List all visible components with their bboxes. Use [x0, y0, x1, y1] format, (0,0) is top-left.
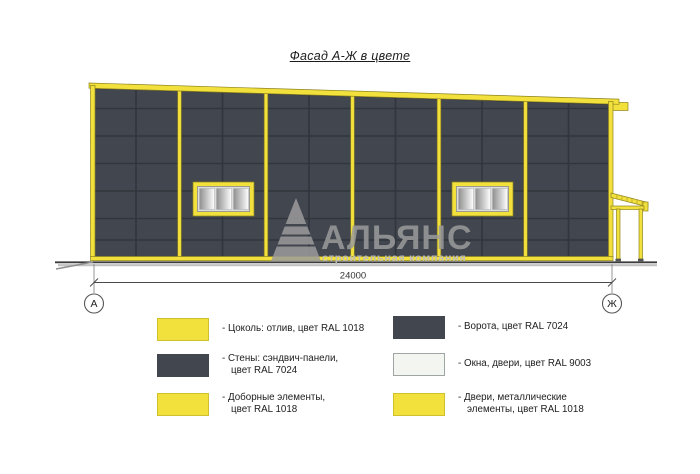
- legend-swatch: [393, 393, 445, 416]
- axis-marker-zh: Ж: [603, 294, 622, 313]
- drawing-sheet: Фасад А-Ж в цвете: [0, 0, 700, 474]
- legend-swatch: [157, 354, 209, 377]
- axis-label-zh: Ж: [607, 298, 617, 310]
- corner-trim-right: [609, 102, 614, 258]
- legend-label: - Цоколь: отлив, цвет RAL 1018: [222, 323, 364, 335]
- legend-swatch: [393, 316, 445, 339]
- legend-item: - Ворота, цвет RAL 7024: [393, 316, 568, 339]
- facade-drawing: АЛЬЯНС строительная компания 24000 А Ж: [0, 0, 700, 474]
- canopy-post-left: [617, 209, 621, 259]
- canopy-post-right: [639, 209, 643, 259]
- dimension-value: 24000: [340, 271, 366, 282]
- post-base-left: [616, 259, 622, 262]
- post-base-right: [638, 259, 644, 262]
- window-right: [452, 182, 513, 216]
- legend-item: - Цоколь: отлив, цвет RAL 1018: [157, 318, 364, 341]
- watermark-name: АЛЬЯНС: [321, 219, 473, 257]
- legend-swatch: [157, 393, 209, 416]
- legend-swatch: [157, 318, 209, 341]
- legend-label: - Окна, двери, цвет RAL 9003: [458, 358, 591, 370]
- axis-marker-a: А: [85, 294, 104, 313]
- canopy-roof: [611, 193, 648, 207]
- legend-item: - Двери, металлические элементы, цвет RA…: [393, 392, 584, 416]
- legend-swatch: [393, 353, 445, 376]
- watermark-subtitle: строительная компания: [322, 253, 466, 265]
- legend-label: - Двери, металлические элементы, цвет RA…: [458, 392, 584, 416]
- entrance-canopy: [611, 193, 648, 261]
- legend-label: - Ворота, цвет RAL 7024: [458, 321, 568, 333]
- axis-label-a: А: [90, 298, 97, 310]
- corner-trim-left: [91, 86, 96, 258]
- legend-item: - Доборные элементы, цвет RAL 1018: [157, 392, 325, 416]
- dimension: 24000: [90, 264, 616, 293]
- legend-item: - Стены: сэндвич-панели, цвет RAL 7024: [157, 353, 338, 377]
- window-left: [193, 182, 254, 216]
- legend-label: - Стены: сэндвич-панели, цвет RAL 7024: [222, 353, 338, 377]
- legend-item: - Окна, двери, цвет RAL 9003: [393, 353, 591, 376]
- legend-label: - Доборные элементы, цвет RAL 1018: [222, 392, 325, 416]
